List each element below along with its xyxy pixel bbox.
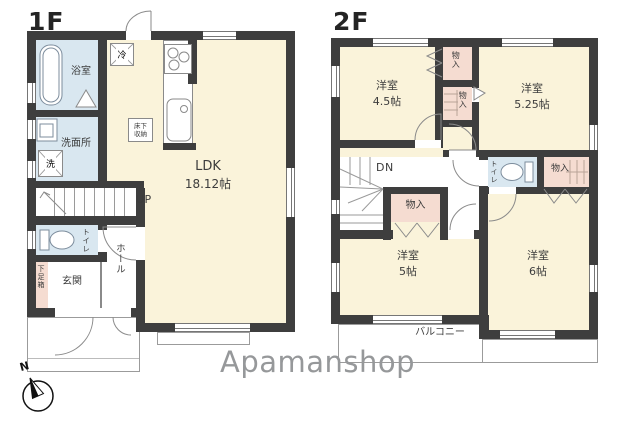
toilet-label-1f: トイレ <box>81 228 90 254</box>
door-swing-icon <box>126 11 151 31</box>
door-opening <box>489 187 516 194</box>
brand-logo: Apamanshop <box>220 345 415 379</box>
window <box>331 263 340 292</box>
wall-segment <box>391 187 448 194</box>
door-opening <box>449 150 476 157</box>
wall-segment <box>479 194 488 315</box>
window <box>589 125 598 150</box>
room-6jo-extension <box>488 305 589 330</box>
window <box>589 265 598 292</box>
wall-segment <box>331 230 393 239</box>
window <box>27 83 36 103</box>
kitchen-sink-icon <box>166 98 192 142</box>
door-swing-icon <box>113 317 131 335</box>
window <box>331 200 340 214</box>
door-opening <box>448 230 474 239</box>
wall-segment <box>27 31 295 40</box>
wall-segment <box>27 255 107 262</box>
balcony-outline-right <box>482 339 598 363</box>
porch-step-line <box>28 358 139 359</box>
stairs-down-label: DN <box>376 162 394 175</box>
room-6-label: 洋室 <box>503 250 573 263</box>
room-45-label: 洋室 <box>352 80 422 93</box>
ldk-terrace-step <box>157 332 250 345</box>
closet-mid-label: 物入 <box>391 200 440 212</box>
bifold-door-icon <box>424 48 443 78</box>
door-opening <box>55 308 131 317</box>
floor-storage-icon: 床下 収納 <box>128 118 153 142</box>
door-swing-icon <box>415 114 441 140</box>
stove-icon <box>164 44 192 74</box>
wall-segment <box>163 143 196 150</box>
room-5-size: 5帖 <box>373 266 443 279</box>
bathroom-label: 浴室 <box>61 66 101 78</box>
room-6-size: 6帖 <box>503 266 573 279</box>
ldk-label: LDK <box>173 160 243 175</box>
fridge-label: 冷 <box>116 48 127 61</box>
shoe-box-label: 下足箱 <box>37 265 45 289</box>
bifold-door-icon <box>394 222 440 238</box>
balcony-label: バルコニー <box>400 327 480 339</box>
door-opening <box>126 31 151 40</box>
door-swing-icon <box>449 124 476 150</box>
door-swing-icon <box>55 317 93 355</box>
room-45-size: 4.5帖 <box>352 96 422 109</box>
wall-segment <box>537 157 544 187</box>
floor-storage-label-2: 収納 <box>134 130 147 138</box>
entrance-label: 玄関 <box>47 276 97 288</box>
bath-door-icon <box>74 88 98 109</box>
wall-segment <box>331 38 598 47</box>
wall-segment <box>27 181 144 188</box>
closet-shelf-hatch <box>444 90 458 116</box>
door-swing-icon <box>453 160 479 186</box>
bathtub-icon <box>39 44 63 106</box>
wall-segment <box>479 315 489 339</box>
wall-segment <box>27 216 144 225</box>
wall-segment <box>440 194 448 240</box>
window <box>373 315 442 324</box>
door-opening <box>479 160 488 186</box>
ldk-size-label: 18.12帖 <box>168 178 248 192</box>
window <box>27 161 36 178</box>
floor-plan-canvas: 1F 2F <box>0 0 640 421</box>
closet-top2-label: 物入 <box>458 91 467 109</box>
toilet-icon <box>496 159 536 185</box>
door-swing-icon <box>450 204 476 230</box>
washroom-label: 洗面所 <box>46 138 106 150</box>
wall-segment <box>27 110 107 117</box>
stairs-up-label: UP <box>136 194 152 207</box>
window <box>27 231 36 249</box>
window <box>373 38 428 47</box>
door-opening <box>415 140 441 148</box>
floor-storage-label-1: 床下 <box>134 122 147 130</box>
window <box>500 330 555 339</box>
window <box>27 120 36 139</box>
toilet-icon <box>38 227 80 253</box>
room-5-label: 洋室 <box>373 250 443 263</box>
bifold-door-icon <box>543 188 588 204</box>
entrance-hall-divider <box>100 262 102 308</box>
window <box>175 323 250 332</box>
refrigerator-icon: 冷 <box>110 43 134 66</box>
window <box>286 168 295 217</box>
room-525-size: 5.25帖 <box>497 99 567 112</box>
closet-top1-label: 物入 <box>451 51 460 69</box>
washer-label: 洗 <box>45 157 56 170</box>
stairs-arrow-icon <box>36 188 70 216</box>
toilet-label-2f: トイレ <box>490 160 498 184</box>
door-opening <box>136 227 145 260</box>
closet-right-label: 物入 <box>544 164 576 174</box>
hall-label: ホール <box>113 243 124 275</box>
floor2-title: 2F <box>333 8 369 37</box>
washing-machine-icon: 洗 <box>38 150 63 177</box>
door-swing-icon <box>489 194 516 221</box>
wall-segment <box>443 80 472 87</box>
room-525-label: 洋室 <box>497 83 567 96</box>
window <box>502 38 553 47</box>
window <box>331 66 340 97</box>
window <box>203 31 236 40</box>
closet-door-arrow-icon <box>473 86 486 101</box>
